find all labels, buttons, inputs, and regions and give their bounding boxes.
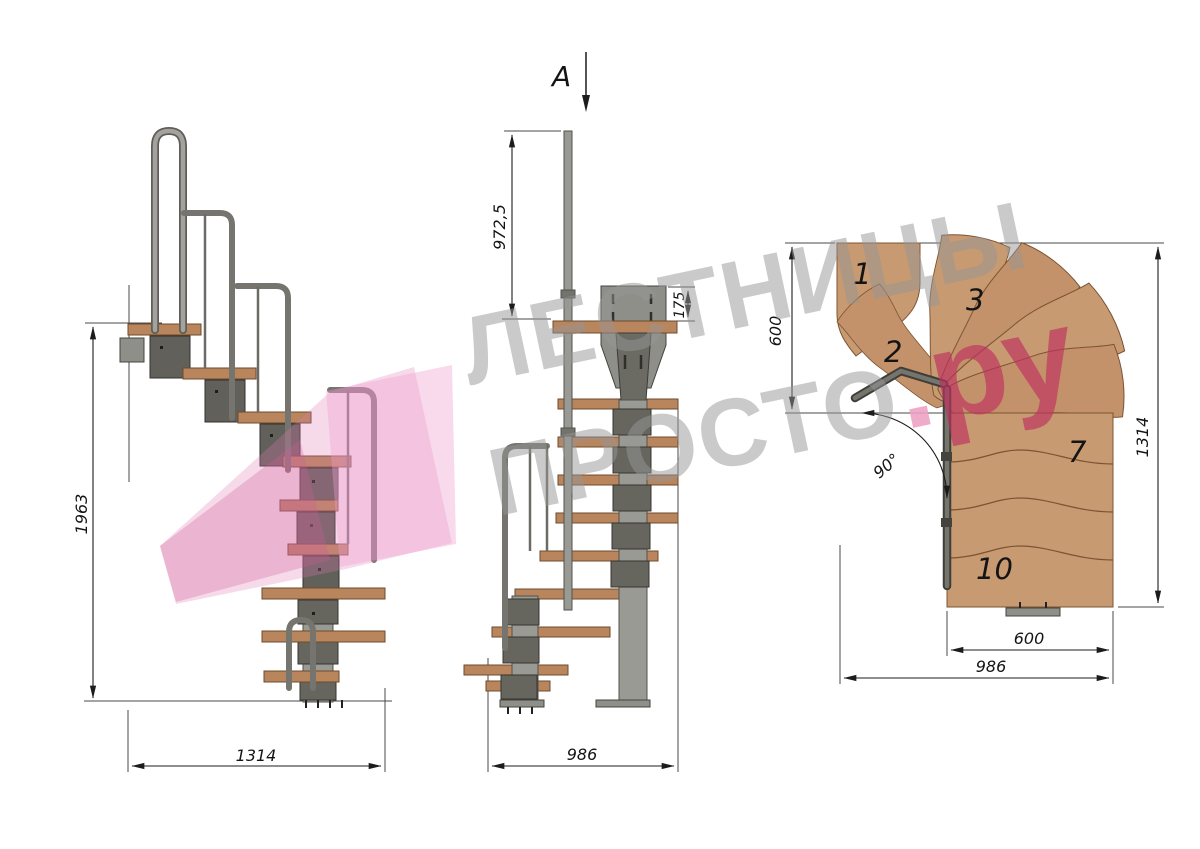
column-funnel [616,333,651,400]
tread-label-3: 3 [966,283,984,317]
dim-turn-angle: 90° [869,449,903,482]
dim-plan-length: 1314 [1133,417,1152,458]
dim-overall-height: 1963 [72,494,91,535]
tread-label-7: 7 [1068,435,1087,469]
staircase-drawing: 1963 1314 A [0,0,1200,849]
dim-rail-height: 972,5 [490,204,509,250]
dim-plan-overall-width: 986 [976,657,1007,676]
front-elevation-view: A 972,5 1 [464,52,695,772]
dim-plate-offset: 175 [672,292,688,319]
dim-step-width: 600 [1014,629,1045,648]
dim-flight-width: 600 [766,316,785,347]
left-base-plate [500,700,544,707]
rail-joint-1 [941,452,952,461]
watermark-arrow-facet [326,365,456,567]
angle-arc [862,413,947,498]
tread-label-10: 10 [976,552,1013,586]
rail-joint-2 [941,518,952,527]
handrail-loop-top-highlight [155,131,183,330]
top-tread [553,321,677,333]
lower-collars [298,600,338,700]
front-balusters [530,446,547,551]
watermark-arrow [160,365,456,604]
plan-view: 90° 600 1314 600 986 1 2 3 7 10 [766,230,1164,684]
plan-foot-plate [1006,608,1060,616]
post-joint-2 [561,428,575,436]
section-arrow-head [582,95,590,112]
section-label: A [550,60,571,93]
tread-label-2: 2 [884,335,902,369]
handrail-loop-top [155,131,183,330]
central-column [619,400,647,706]
tread-label-1: 1 [853,257,871,291]
dim-overall-depth: 1314 [236,746,277,765]
handrail-post [564,131,572,610]
drawing-canvas: 1963 1314 A [0,0,1200,849]
front-anchor-bolts [508,707,532,714]
post-joint-1 [561,290,575,298]
wall-bracket [120,338,144,362]
column-base-plate [596,700,650,707]
dim-front-width: 986 [567,745,598,764]
